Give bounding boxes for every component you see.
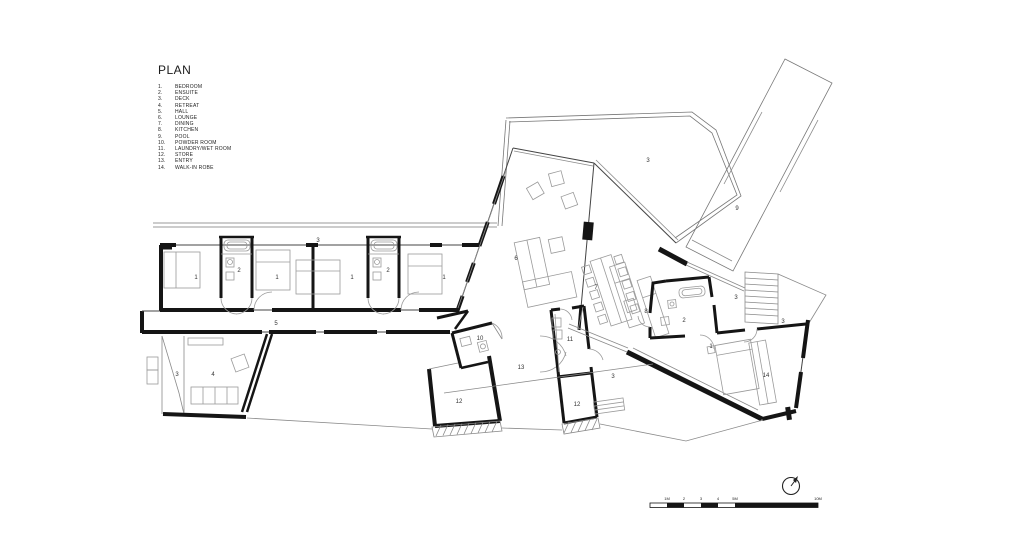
dining-table [581,251,642,329]
room-label-2: 2 [386,268,390,274]
pool [686,59,832,271]
laundry-store-strip [551,306,603,434]
room-label-3: 3 [781,319,785,325]
plan-title: PLAN [158,63,231,77]
room-label-1: 1 [442,275,446,281]
retreat [147,334,272,417]
room-label-1: 1 [194,275,198,281]
scale-bar-labels: 1M2345M10M [664,496,822,501]
room-label-11: 11 [567,337,574,343]
room-label-1: 1 [350,275,354,281]
room-label-3: 3 [175,372,179,378]
room-label-3: 3 [646,158,650,164]
bed [707,339,759,396]
floor-plan-drawing: 1M2345M10M 12112135346397821143310131112… [0,0,1032,558]
room-labels: 12112135346397821143310131112123 [175,158,785,408]
kitchen-dining [581,249,745,338]
room-label-12: 12 [456,399,463,405]
master-ensuite [638,277,717,349]
scale-label: 1M [664,496,670,501]
scale-label: 2 [683,496,686,501]
deck-steps [593,398,624,414]
ensuite-2 [366,236,401,314]
room-label-3: 3 [734,295,738,301]
room-label-5: 5 [274,321,278,327]
room-label-4: 4 [211,372,215,378]
legend: PLAN 1.BEDROOM2.ENSUITE3.DECK4.RETREAT5.… [158,63,231,171]
legend-item-label: WALK-IN ROBE [175,165,214,171]
scale-label: 3 [700,496,703,501]
room-label-13: 13 [518,365,525,371]
room-label-14: 14 [763,373,770,379]
master-suite [627,277,808,420]
site-lines [247,364,763,441]
room-label-1: 1 [275,275,279,281]
lounge [457,148,594,330]
powder-room [452,323,502,368]
sofa [514,232,577,307]
legend-list: 1.BEDROOM2.ENSUITE3.DECK4.RETREAT5.HALL6… [158,84,231,171]
legend-item-number: 14. [158,165,175,171]
scale-label: 10M [814,496,822,501]
room-label-2: 2 [237,268,241,274]
legend-item: 14.WALK-IN ROBE [158,165,231,171]
room-label-1: 1 [709,344,713,350]
scale-bar: 1M2345M10M [650,496,822,508]
scale-label: 4 [717,496,720,501]
room-label-9: 9 [735,206,739,212]
room-label-2: 2 [682,318,686,324]
room-label-12: 12 [574,402,581,408]
north-arrow-icon [783,476,800,495]
ensuite-1 [219,236,254,314]
upper-deck [506,112,741,243]
stairs [745,272,826,324]
room-label-10: 10 [477,336,484,342]
scale-label: 5M [732,496,738,501]
room-label-3: 3 [611,374,615,380]
plan-sheet: 1M2345M10M 12112135346397821143310131112… [0,0,1032,558]
room-label-3: 3 [316,238,320,244]
